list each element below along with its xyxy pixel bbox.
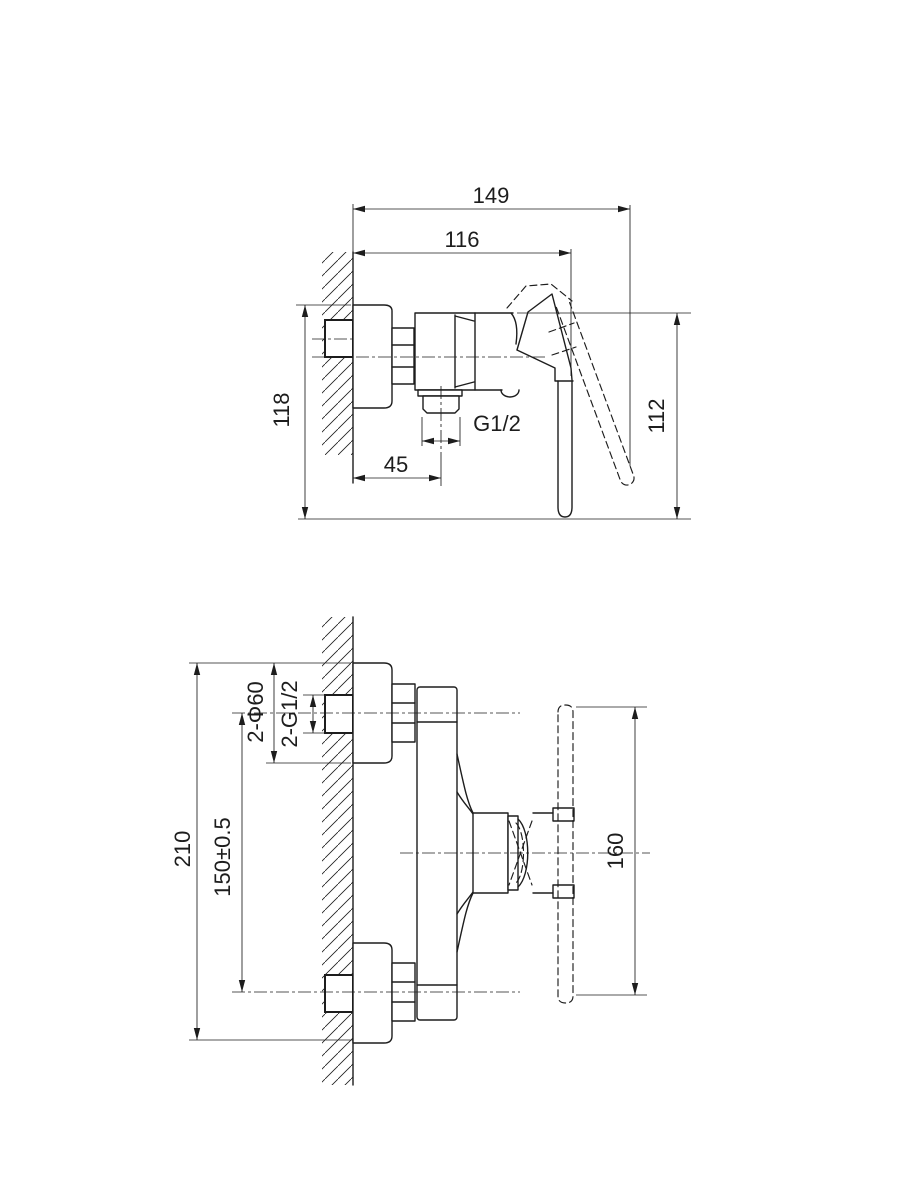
eccentric-connector-bottom	[325, 975, 353, 1012]
dim-118-label: 118	[269, 392, 294, 427]
dim-160-label: 160	[603, 833, 628, 870]
lever-handle-open-hidden	[507, 284, 634, 485]
dim-2g12-label: 2-G1/2	[277, 680, 302, 747]
body-plate	[417, 687, 457, 1020]
eccentric-connector-top	[325, 695, 353, 733]
dim-g12-label: G1/2	[473, 411, 521, 436]
lever-handle	[558, 381, 572, 517]
escutcheon-bottom	[353, 943, 392, 1043]
dim-handle-length: 160	[576, 707, 647, 995]
valve-body	[415, 313, 519, 397]
hex-nut	[392, 328, 414, 384]
technical-drawing: 149 116 118 112 45 G1/2	[0, 0, 900, 1200]
side-view: 149 116 118 112 45 G1/2	[269, 183, 691, 519]
outlet-port	[418, 386, 462, 486]
technical-drawing-page: 149 116 118 112 45 G1/2	[0, 0, 900, 1200]
dim-149-label: 149	[473, 183, 510, 208]
dim-outlet-offset: 45	[353, 452, 441, 478]
wall-hatching	[322, 617, 353, 1085]
dim-2x60-label: 2-Φ60	[243, 681, 268, 743]
dim-116-label: 116	[444, 227, 479, 252]
dim-inlet-spacing: 150±0.5	[210, 713, 242, 992]
dim-45-label: 45	[384, 452, 408, 477]
escutcheon	[353, 305, 392, 408]
dim-inlet-thread: 2-G1/2	[277, 680, 327, 747]
dim-outlet-thread: G1/2	[422, 411, 521, 446]
dim-112-label: 112	[644, 398, 669, 433]
cartridge-housing	[517, 294, 573, 381]
dim-height-handle-side: 112	[517, 313, 691, 519]
lever-handle-hidden	[558, 705, 573, 1003]
front-view: 210 150±0.5 2-Φ60 2-G1/2 160	[170, 617, 650, 1085]
dim-150-label: 150±0.5	[210, 817, 235, 896]
dim-210-label: 210	[170, 831, 195, 868]
